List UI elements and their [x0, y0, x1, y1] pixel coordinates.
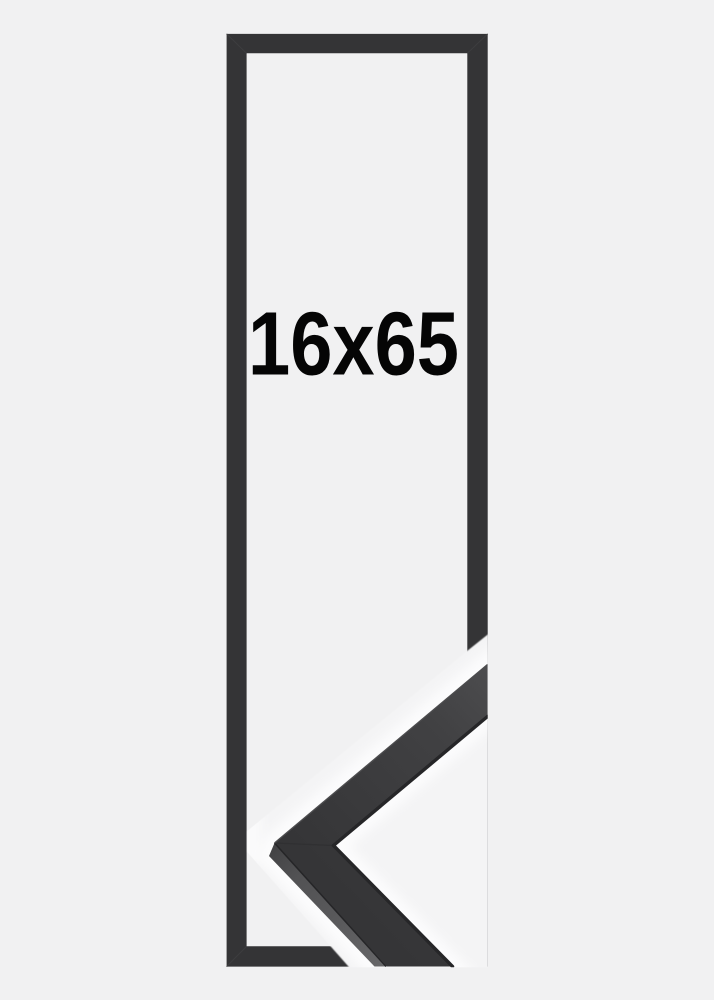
- svg-text:16x65: 16x65: [248, 295, 459, 395]
